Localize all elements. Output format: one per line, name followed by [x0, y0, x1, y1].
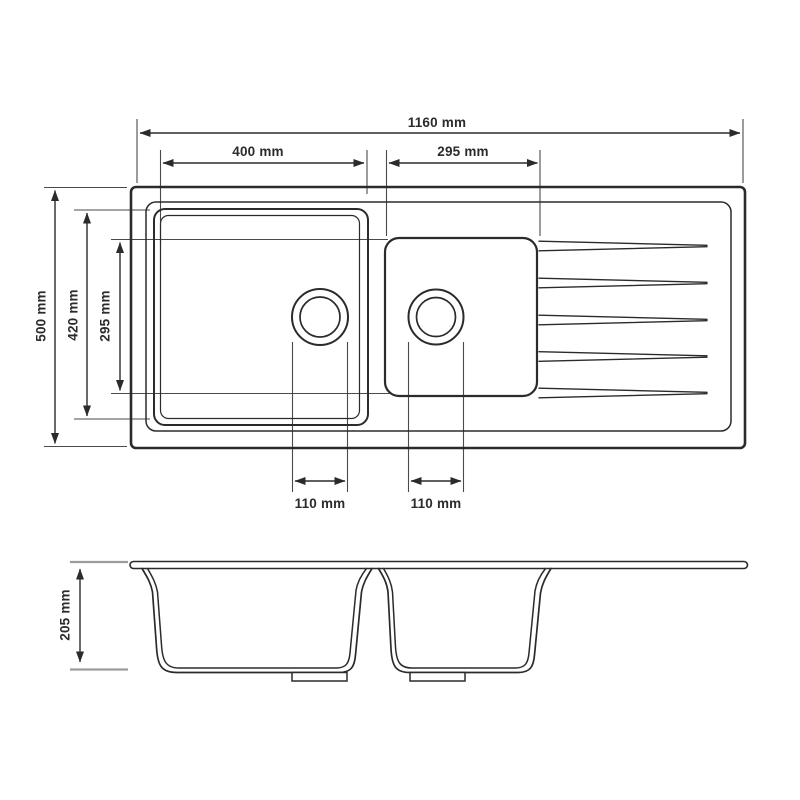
dim-label: 500 mm: [34, 290, 49, 341]
dim-label: 400 mm: [232, 144, 283, 159]
left-drain-boss: [292, 673, 347, 682]
left-bowl-inner-edge: [161, 216, 360, 419]
sink-body: [131, 187, 745, 448]
worktop-rim-profile: [130, 562, 748, 569]
drainer-groove: [539, 388, 707, 398]
dim-label: 110 mm: [411, 496, 462, 511]
right-drain-boss: [410, 673, 465, 682]
left-drain-inner-ring: [300, 297, 340, 337]
right-bowl-profile-outer: [379, 569, 552, 673]
dim-label: 1160 mm: [408, 115, 466, 130]
dim-right-bowl-width: 295 mm: [387, 144, 541, 236]
sink-profile: [130, 562, 748, 682]
top-view-dimensions: 1160 mm 400 mm 295 mm 500 mm: [34, 115, 744, 511]
top-view: 1160 mm 400 mm 295 mm 500 mm: [34, 115, 746, 511]
drainer-grooves: [539, 241, 707, 398]
dim-bowl-depth: 205 mm: [58, 562, 129, 670]
sink-diagram: 1160 mm 400 mm 295 mm 500 mm: [0, 0, 800, 800]
drainer-groove: [539, 352, 707, 362]
sink-spec-sheet: 1160 mm 400 mm 295 mm 500 mm: [0, 0, 800, 800]
dim-label: 205 mm: [58, 589, 73, 640]
left-bowl-outer-edge: [154, 209, 368, 425]
right-bowl-profile-inner: [384, 569, 546, 669]
dim-left-bowl-width: 400 mm: [161, 144, 368, 245]
dim-label: 420 mm: [66, 289, 81, 340]
drainer-groove: [539, 315, 707, 325]
dim-left-drain-offset: 110 mm: [293, 342, 348, 511]
dim-label: 295 mm: [98, 290, 113, 341]
side-view-dimensions: 205 mm: [58, 562, 129, 670]
right-drain-hole: [409, 290, 464, 345]
drainer-groove: [539, 278, 707, 288]
side-view: 205 mm: [58, 562, 748, 682]
left-bowl-profile-outer: [142, 569, 372, 673]
dim-label: 110 mm: [295, 496, 346, 511]
left-drain-hole: [292, 289, 348, 345]
dim-right-drain-offset: 110 mm: [409, 342, 464, 511]
left-bowl-profile-inner: [148, 569, 367, 669]
drainer-groove: [539, 241, 707, 251]
right-drain-inner-ring: [417, 298, 456, 337]
dim-label: 295 mm: [437, 144, 488, 159]
